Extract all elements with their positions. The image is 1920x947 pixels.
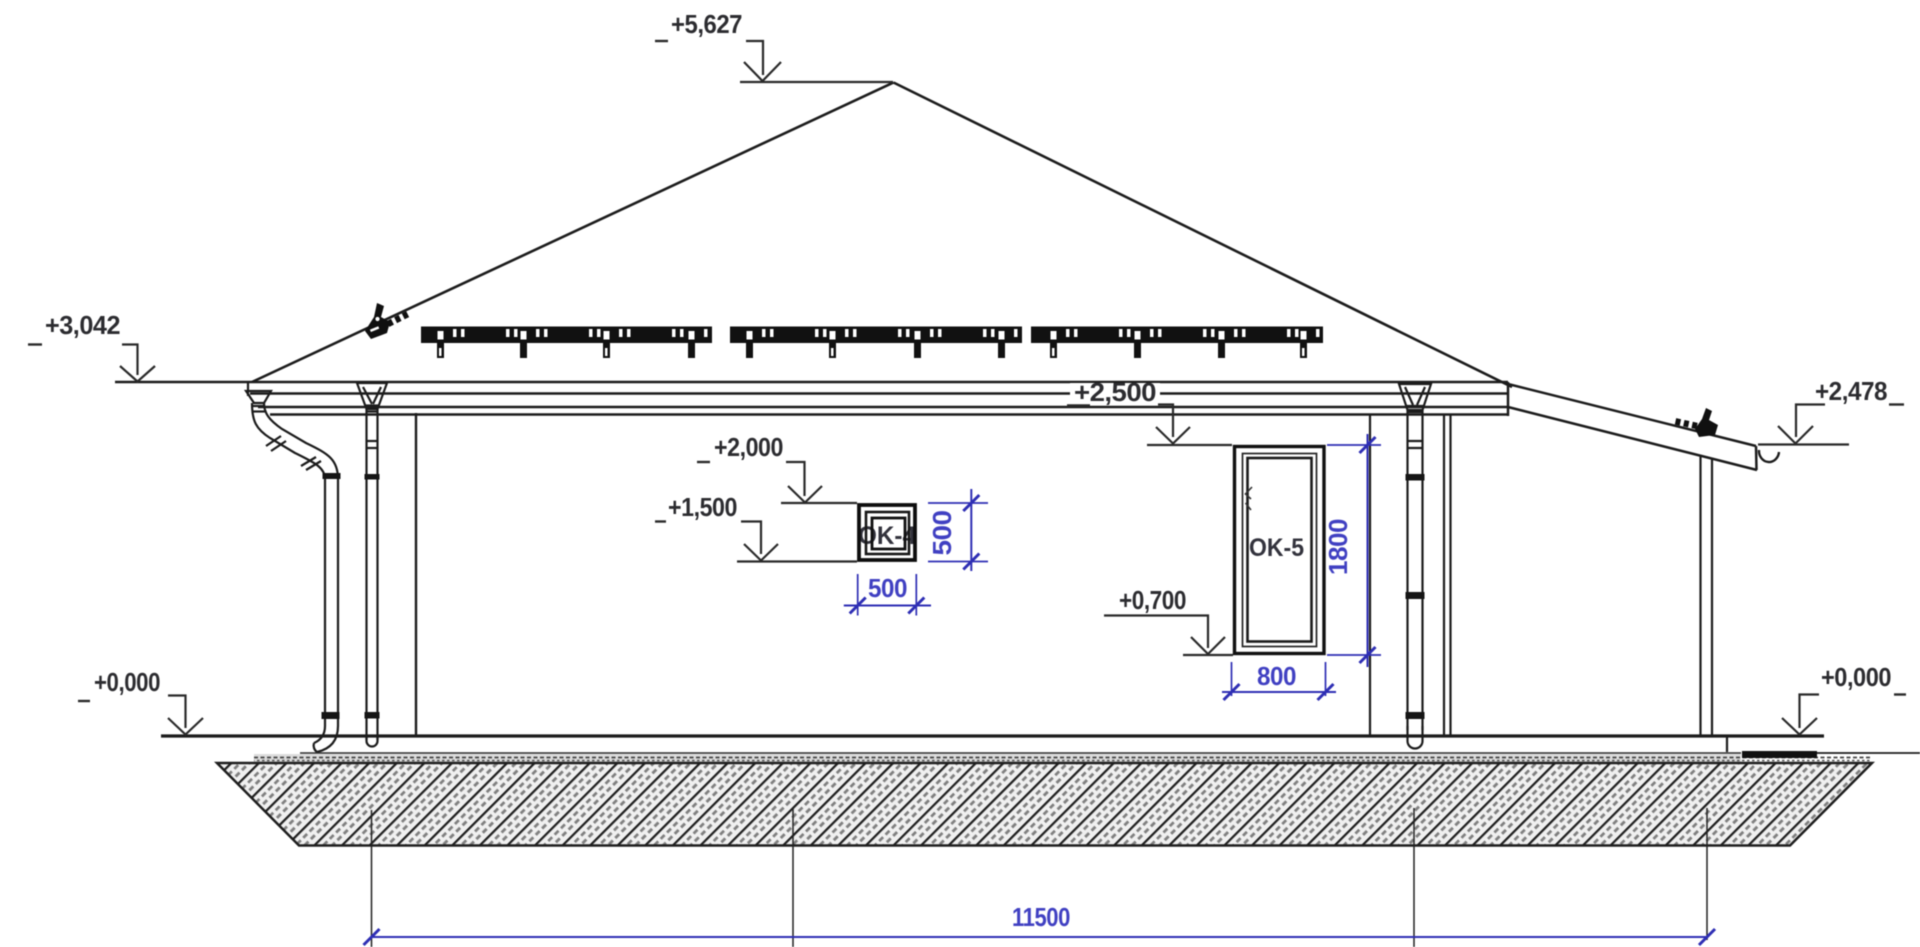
- svg-text:+5,627: +5,627: [671, 9, 742, 39]
- svg-text:+0,700: +0,700: [1119, 585, 1186, 615]
- svg-text:+0,000: +0,000: [1821, 662, 1891, 692]
- svg-text:11500: 11500: [1012, 902, 1070, 932]
- svg-text:+0,000: +0,000: [94, 667, 160, 697]
- svg-text:OK-5: OK-5: [1249, 534, 1304, 562]
- svg-text:+2,500: +2,500: [1074, 377, 1156, 407]
- svg-text:+2,478: +2,478: [1815, 376, 1887, 406]
- svg-text:+1,500: +1,500: [668, 492, 737, 522]
- svg-text:500: 500: [868, 573, 907, 603]
- svg-text:+3,042: +3,042: [45, 310, 120, 340]
- svg-text:+2,000: +2,000: [714, 432, 783, 462]
- svg-text:1800: 1800: [1323, 519, 1353, 575]
- svg-text:800: 800: [1257, 661, 1296, 691]
- svg-text:500: 500: [927, 510, 957, 555]
